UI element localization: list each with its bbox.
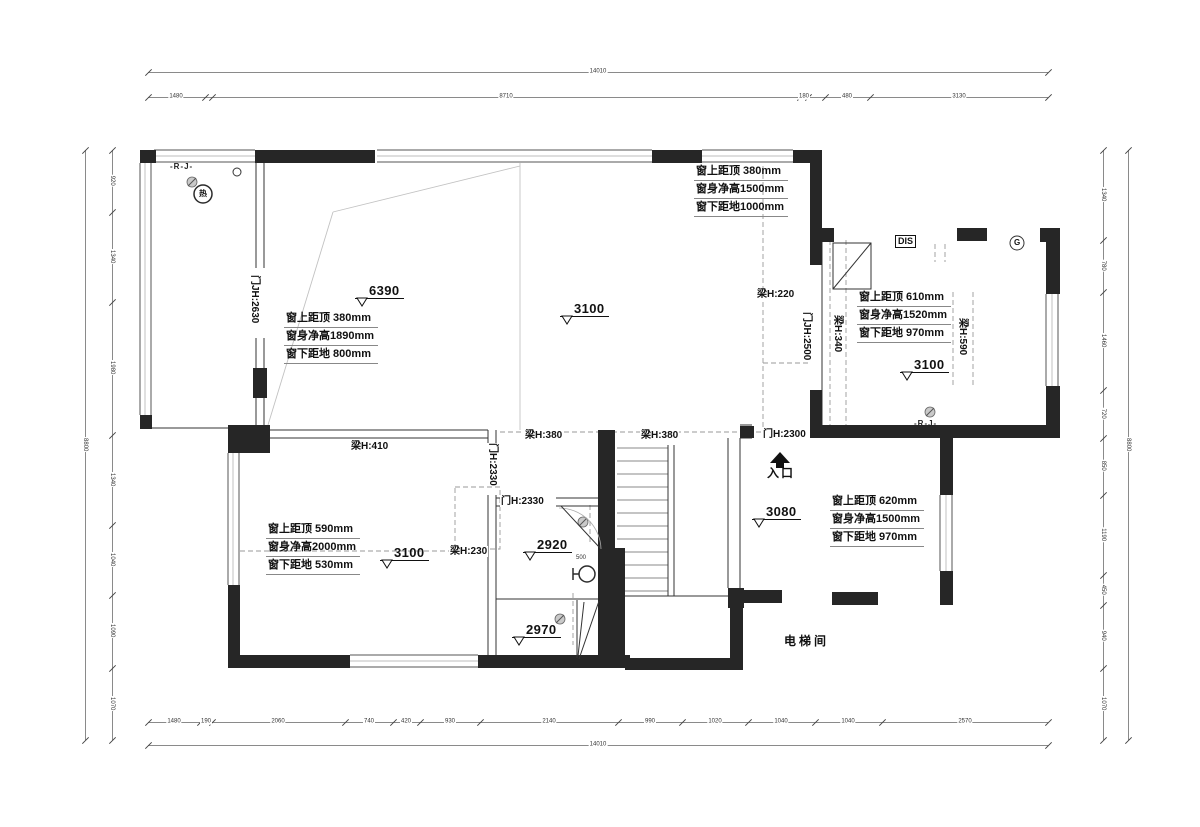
window-spec-line: 窗上距顶 380mm	[694, 163, 788, 181]
dimension-left-inner: 1070	[109, 696, 115, 711]
window-spec-line: 窗身净高1520mm	[857, 307, 951, 325]
floor-plan-page: 窗上距顶 380mm 窗身净高1890mm 窗下距地 800mm 窗上距顶 38…	[0, 0, 1200, 827]
window-spec-balcony: 窗上距顶 380mm 窗身净高1890mm 窗下距地 800mm	[284, 310, 378, 364]
dimension-right-inner: 450	[1100, 584, 1106, 596]
floor-plan-drawing	[0, 0, 1200, 827]
elevation-value: 3100	[914, 357, 945, 372]
dimension-right-outer: 8800	[1125, 437, 1131, 452]
beam-height-label: 梁H:220	[756, 289, 795, 300]
dimension-bottom-inner: 930	[444, 719, 456, 725]
dimension-bottom-inner: 990	[644, 719, 656, 725]
dimension-left-inner	[112, 150, 113, 740]
dimension-left-outer: 8800	[82, 437, 88, 452]
elevation-marker: 3100	[900, 358, 949, 373]
window-spec-line: 窗身净高1500mm	[694, 181, 788, 199]
beam-height-label: 梁H:340	[832, 315, 843, 352]
dimension-bottom-inner: 1480	[166, 719, 181, 725]
window-spec-entry: 窗上距顶 620mm 窗身净高1500mm 窗下距地 970mm	[830, 493, 924, 547]
water-heater-label: 热	[199, 190, 207, 198]
elevation-value: 3100	[394, 545, 425, 560]
dimension-bottom-inner: 190	[200, 719, 212, 725]
entrance-label: 入口	[766, 468, 796, 479]
window-spec-line: 窗身净高2000mm	[266, 539, 360, 557]
dis-tag: DIS	[895, 235, 916, 248]
beam-height-label: 梁H:380	[640, 430, 679, 441]
window-spec-line: 窗下距地 530mm	[266, 557, 360, 575]
elevation-marker: 2970	[512, 623, 561, 638]
elevator-room-label: 电梯间	[783, 636, 830, 647]
dimension-right-inner: 720	[1100, 408, 1106, 420]
window-spec-line: 窗上距顶 380mm	[284, 310, 378, 328]
dimension-bottom-inner: 2570	[957, 719, 972, 725]
door-height-label: 门JH:2500	[801, 312, 812, 360]
beam-height-label: 梁H:590	[957, 318, 968, 355]
dimension-left-inner: 1040	[109, 552, 115, 567]
elevation-marker: 3100	[560, 302, 609, 317]
dimension-top-inner: 3130	[951, 94, 966, 100]
dimension-left-inner: 920	[109, 175, 115, 187]
elevation-marker: 2920	[523, 538, 572, 553]
elevation-value: 6390	[369, 283, 400, 298]
dimension-top-inner: 180	[798, 94, 810, 100]
elevation-marker: 6390	[355, 284, 404, 299]
dimension-top-inner	[148, 97, 1048, 98]
rj-pipe-label: -R-J-	[914, 419, 937, 428]
dimension-bottom-inner: 2060	[270, 719, 285, 725]
elevation-marker: 3080	[752, 505, 801, 520]
window-spec-line: 窗下距地 970mm	[857, 325, 951, 343]
window-spec-line: 窗上距顶 610mm	[857, 289, 951, 307]
window-spec-line: 窗身净高1500mm	[830, 511, 924, 529]
dimension-bottom-inner: 420	[400, 719, 412, 725]
dimension-top-inner: 1480	[168, 94, 183, 100]
window-spec-line: 窗上距顶 620mm	[830, 493, 924, 511]
dimension-right-inner: 780	[1100, 260, 1106, 272]
door-height-label: 门JH:2630	[249, 275, 260, 323]
door-height-label: 门H:2330	[487, 443, 498, 486]
dimension-top-outer: 14010	[589, 69, 608, 75]
rj-pipe-label: -R-J-	[170, 162, 193, 171]
dimension-right-inner: 1070	[1100, 696, 1106, 711]
toilet-icon	[573, 566, 595, 582]
staircase	[617, 445, 674, 596]
beam-height-label: 梁H:380	[524, 430, 563, 441]
window-spec-southwest: 窗上距顶 590mm 窗身净高2000mm 窗下距地 530mm	[266, 521, 360, 575]
door-height-label: 门H:2330	[500, 496, 545, 507]
elevation-value: 3080	[766, 504, 797, 519]
dimension-left-inner: 1340	[109, 472, 115, 487]
elevation-value: 3100	[574, 301, 605, 316]
dimension-bottom-inner: 1020	[707, 719, 722, 725]
beam-height-label: 梁H:230	[449, 546, 488, 557]
dimension-right-inner: 940	[1100, 630, 1106, 642]
window-spec-line: 窗下距地 800mm	[284, 346, 378, 364]
dimension-left-inner: 1980	[109, 360, 115, 375]
dimension-bottom-inner: 740	[363, 719, 375, 725]
dimension-bottom-outer: 14010	[589, 742, 608, 748]
dimension-left-inner: 1090	[109, 623, 115, 638]
window-spec-east: 窗上距顶 610mm 窗身净高1520mm 窗下距地 970mm	[857, 289, 951, 343]
elevation-value: 2970	[526, 622, 557, 637]
fixture-dimension: 500	[576, 555, 586, 561]
gas-point-label: G	[1014, 239, 1020, 247]
window-spec-line: 窗下距地 970mm	[830, 529, 924, 547]
understair-slope-lines	[577, 600, 599, 659]
elevation-marker: 3100	[380, 546, 429, 561]
dimension-bottom-inner: 1040	[840, 719, 855, 725]
elevation-value: 2920	[537, 537, 568, 552]
ceiling-point-icon	[233, 168, 241, 176]
window-spec-line: 窗下距地1000mm	[694, 199, 788, 217]
dimension-right-inner: 850	[1100, 460, 1106, 472]
door-height-label: 门H:2300	[762, 429, 807, 440]
dimension-right-inner: 1460	[1100, 333, 1106, 348]
dimension-left-inner: 1340	[109, 249, 115, 264]
dimension-right-inner: 1340	[1100, 187, 1106, 202]
dimension-bottom-inner: 1040	[773, 719, 788, 725]
dimension-top-inner: 480	[841, 94, 853, 100]
dimension-bottom-inner: 2140	[541, 719, 556, 725]
window-spec-top: 窗上距顶 380mm 窗身净高1500mm 窗下距地1000mm	[694, 163, 788, 217]
dimension-top-inner: 8710	[498, 94, 513, 100]
window-spec-line: 窗上距顶 590mm	[266, 521, 360, 539]
beam-height-label: 梁H:410	[350, 441, 389, 452]
walls	[140, 150, 1060, 670]
dimension-right-inner: 1190	[1100, 527, 1106, 542]
window-spec-line: 窗身净高1890mm	[284, 328, 378, 346]
